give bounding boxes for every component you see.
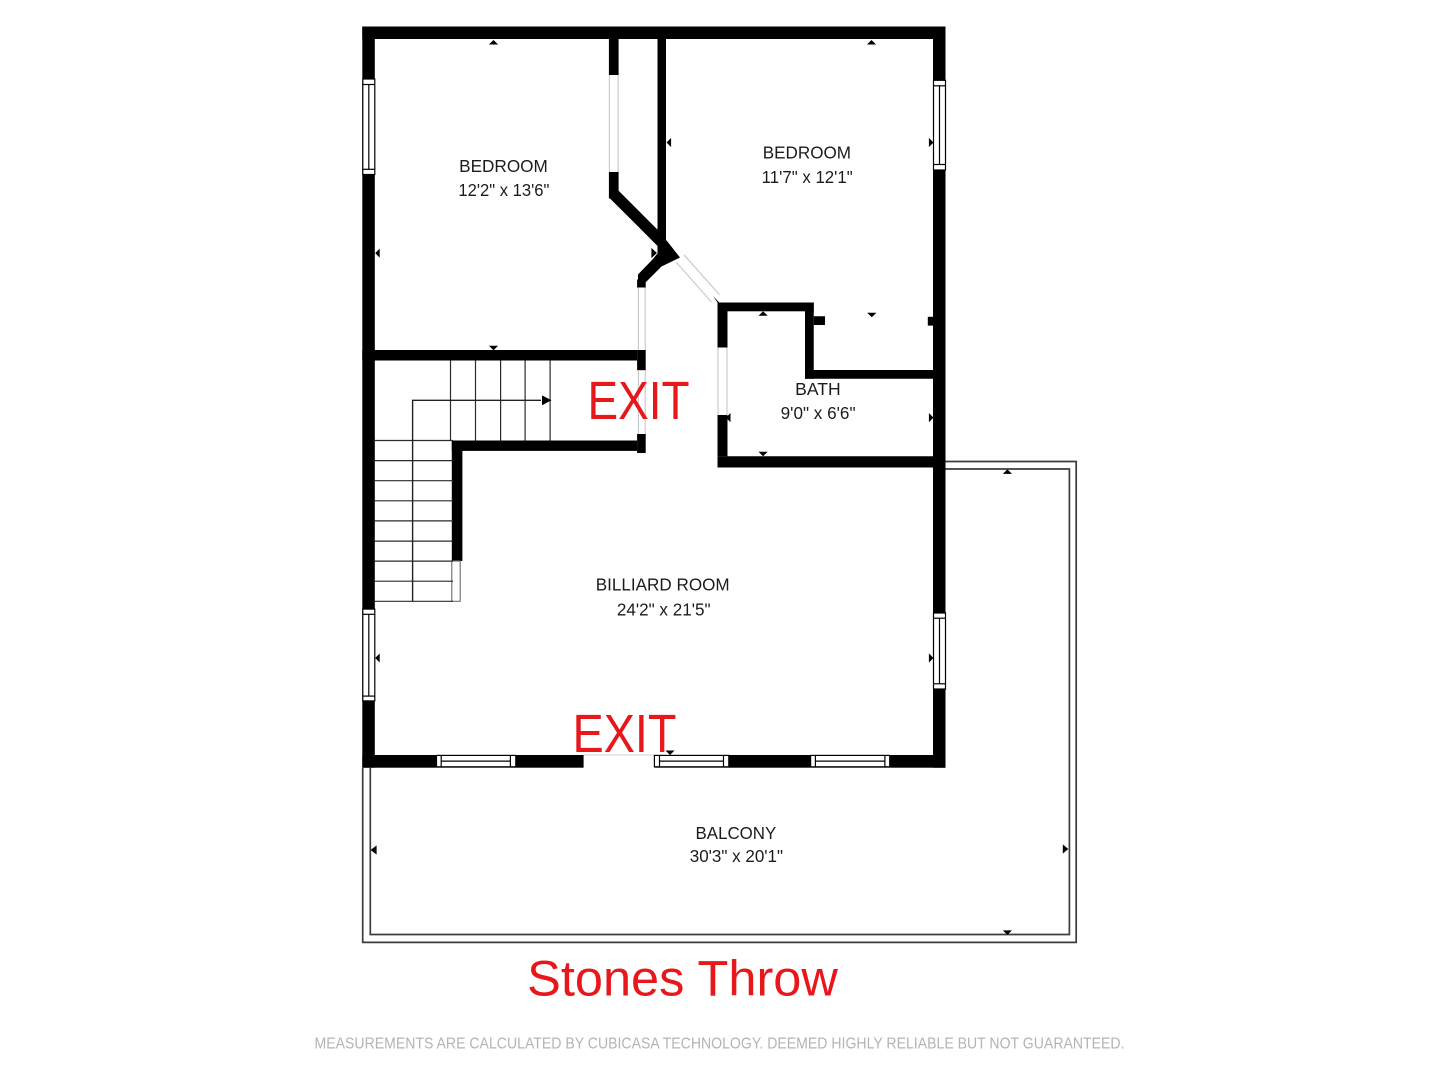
svg-text:30'3" x 20'1": 30'3" x 20'1" [690, 846, 783, 866]
svg-text:12'2" x 13'6": 12'2" x 13'6" [458, 180, 549, 200]
svg-text:MEASUREMENTS ARE CALCULATED BY: MEASUREMENTS ARE CALCULATED BY CUBICASA … [315, 1035, 1125, 1052]
svg-text:EXIT: EXIT [588, 371, 690, 431]
svg-text:BALCONY: BALCONY [696, 823, 777, 843]
svg-text:Stones Throw: Stones Throw [527, 950, 838, 1007]
svg-text:11'7" x 12'1": 11'7" x 12'1" [762, 167, 853, 187]
svg-text:BEDROOM: BEDROOM [459, 156, 548, 176]
svg-text:BEDROOM: BEDROOM [763, 142, 851, 162]
svg-text:9'0" x 6'6": 9'0" x 6'6" [781, 403, 856, 423]
svg-text:24'2" x 21'5": 24'2" x 21'5" [617, 599, 711, 619]
svg-text:EXIT: EXIT [573, 704, 677, 764]
svg-text:BATH: BATH [795, 379, 841, 399]
svg-text:BILLIARD ROOM: BILLIARD ROOM [596, 574, 730, 594]
